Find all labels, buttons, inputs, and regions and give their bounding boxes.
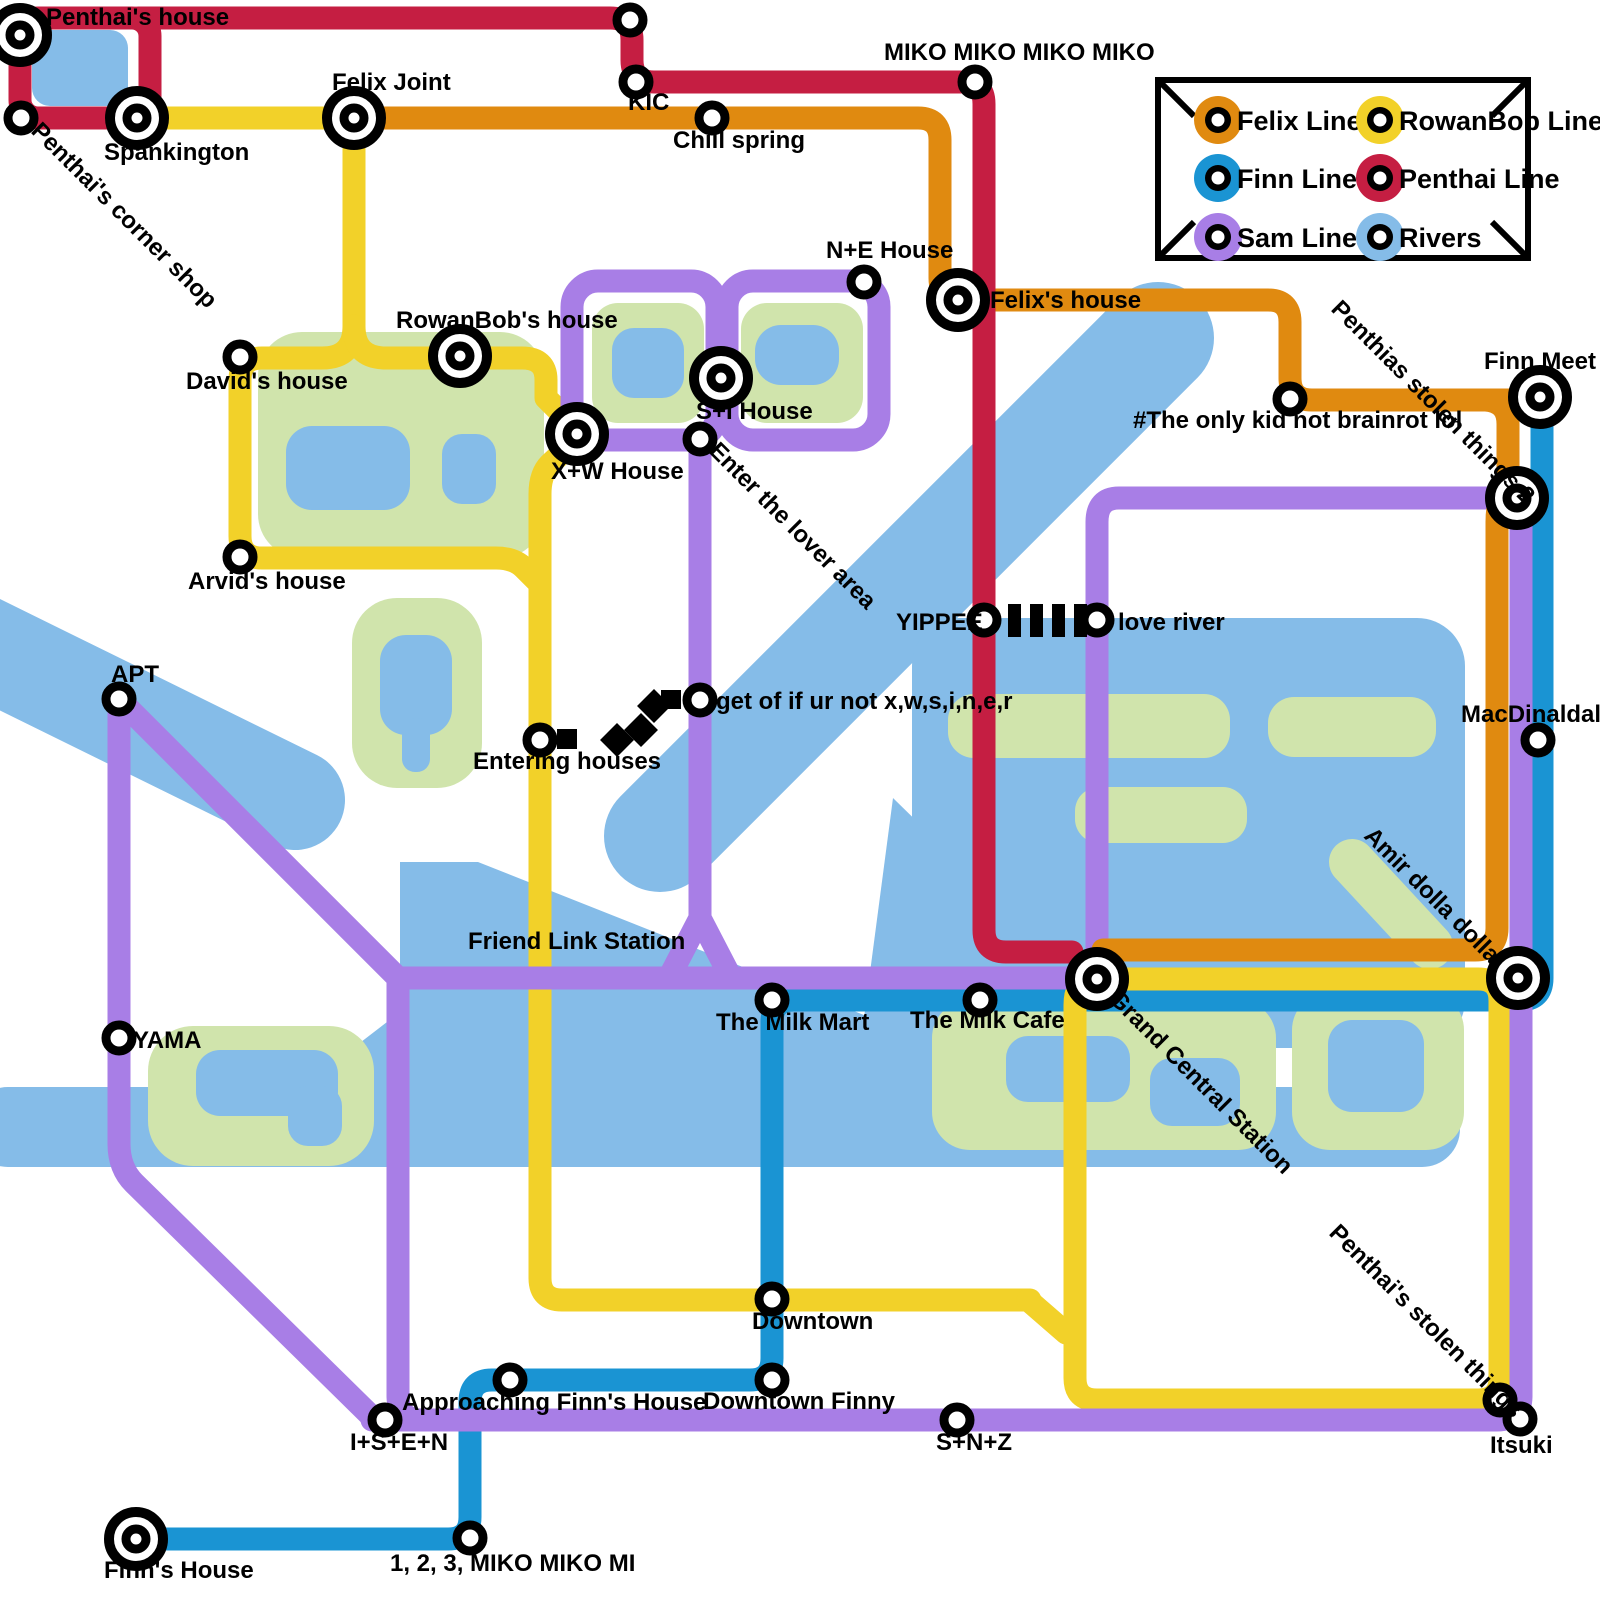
station-apt-marker: [106, 686, 132, 712]
station-unlabeled-top-marker: [617, 7, 643, 33]
legend-label-felix-line: Felix Line: [1237, 106, 1362, 136]
station-ne-house-marker: [851, 269, 877, 295]
station-felix-joint-marker: [327, 91, 381, 145]
station-label-si-house: S+I House: [696, 398, 813, 425]
station-label-felix-joint: Felix Joint: [332, 69, 451, 96]
station-rowanbobs-house-marker: [433, 329, 487, 383]
station-felixs-house-marker: [931, 273, 985, 327]
lake-yama-2: [288, 1086, 342, 1146]
lake-rowanbob-2: [442, 434, 496, 504]
station-love-river-marker: [1084, 607, 1110, 633]
station-label-felixs-house: Felix's house: [990, 287, 1141, 314]
park-east-2: [1268, 697, 1436, 757]
station-label-itsuki: Itsuki: [1490, 1432, 1553, 1459]
station-spankington-marker: [110, 91, 164, 145]
station-label-apt: APT: [111, 661, 159, 688]
station-penthais-house-marker: [0, 8, 47, 62]
station-label-milk-mart: The Milk Mart: [716, 1009, 869, 1036]
station-label-yama: YAMA: [133, 1027, 201, 1054]
station-label-isen: I+S+E+N: [350, 1429, 448, 1456]
station-corner-shop-marker: [8, 105, 34, 131]
legend-penthai-line-icon: [1356, 154, 1404, 202]
legend-rivers-icon: [1356, 213, 1404, 261]
legend-label-sam-line: Sam Line: [1237, 223, 1357, 253]
lake-east-5: [1328, 1020, 1424, 1112]
station-label-miko123: 1, 2, 3, MIKO MIKO MI: [390, 1550, 635, 1577]
legend-felix-line-icon: [1194, 96, 1242, 144]
lake-rowanbob-1: [286, 426, 410, 510]
legend-label-finn-line: Finn Line: [1237, 164, 1357, 194]
legend-rowanbob-line-icon: [1356, 96, 1404, 144]
walk-dash-houses-1: [557, 729, 577, 749]
station-davids-house-marker: [227, 344, 253, 370]
station-label-snz: S+N+Z: [936, 1429, 1012, 1456]
station-label-ne-house: N+E House: [826, 237, 953, 264]
station-label-only-kid: #The only kid not brainrot lol: [1133, 407, 1462, 434]
station-label-entering-houses: Entering houses: [473, 748, 661, 775]
legend-label-rowanbob-line: RowanBob Line: [1399, 106, 1600, 136]
station-label-arvids-house: Arvid's house: [188, 568, 346, 595]
station-label-rowanbobs-house: RowanBob's house: [396, 307, 618, 334]
rowanbob-line-path-4: [1028, 1300, 1066, 1333]
station-label-enter-lover: Enter the lover area: [704, 437, 882, 615]
station-label-spankington: Spankington: [104, 139, 249, 166]
station-miko4-marker: [962, 69, 988, 95]
walk-dash-yippee-2: [1030, 604, 1043, 637]
lake-pear-2: [402, 718, 430, 772]
station-amir-marker: [1491, 951, 1545, 1005]
station-label-xw-house: X+W House: [551, 458, 684, 485]
legend-sam-line-icon: [1194, 213, 1242, 261]
station-yama-marker: [106, 1025, 132, 1051]
station-label-yippee: YIPPEE: [896, 609, 983, 636]
station-label-love-river: love river: [1118, 609, 1225, 636]
transit-map: Penthai's house Spankington Penthai's co…: [0, 0, 1600, 1600]
station-label-get-of: get of if ur not x,w,s,i,n,e,r: [716, 688, 1012, 715]
walk-dash-yippee-3: [1052, 604, 1065, 637]
station-label-davids-house: David's house: [186, 368, 348, 395]
station-label-downtown-finny: Downtown Finny: [703, 1388, 896, 1415]
legend-finn-line-icon: [1194, 154, 1242, 202]
station-miko123-marker: [457, 1525, 483, 1551]
station-label-downtown: Downtown: [752, 1308, 873, 1335]
station-label-milk-cafe: The Milk Cafe: [910, 1007, 1065, 1034]
lake-lover-right: [755, 325, 839, 385]
station-xw-house-marker: [550, 407, 604, 461]
station-label-chill-spring: Chill spring: [673, 127, 805, 154]
station-enter-lover-marker: [687, 426, 713, 452]
legend-label-penthai-line: Penthai Line: [1399, 164, 1560, 194]
station-label-finns-house: Finn's House: [104, 1557, 254, 1584]
station-arvids-house-marker: [227, 544, 253, 570]
station-label-kic: KIC: [628, 89, 669, 116]
legend-label-rivers: Rivers: [1399, 223, 1482, 253]
station-label-friend-link: Friend Link Station: [468, 928, 685, 955]
lake-lover-left: [612, 328, 684, 398]
station-finn-meet-marker: [1513, 370, 1567, 424]
station-label-macdinaldal: MacDinaldal: [1461, 701, 1600, 728]
walk-dash-yippee-1: [1008, 604, 1021, 637]
legend: Felix Line RowanBob Line Finn Line Penth…: [1158, 80, 1600, 261]
station-si-house-marker: [694, 351, 748, 405]
walk-dash-houses-5: [661, 690, 681, 709]
station-macdinaldal-marker: [1525, 727, 1551, 753]
station-label-finn-meet: Finn Meet: [1484, 348, 1596, 375]
station-label-miko4: MIKO MIKO MIKO MIKO: [884, 39, 1155, 66]
station-label-penthais-house: Penthai's house: [46, 4, 229, 31]
station-label-approaching: Approaching Finn's House: [402, 1389, 706, 1416]
station-get-of-marker: [687, 687, 713, 713]
